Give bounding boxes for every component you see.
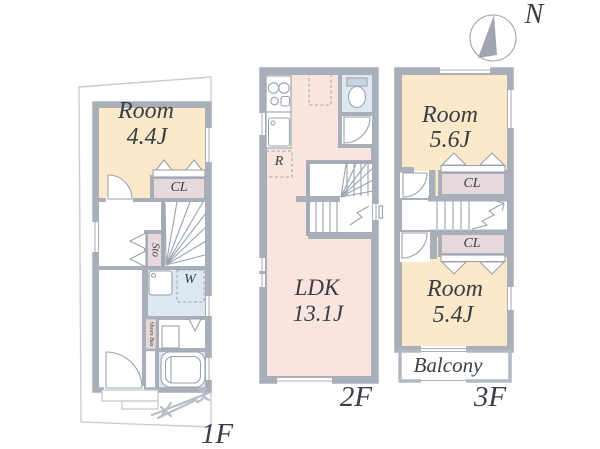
- toilet-icon-2f: [347, 78, 367, 108]
- floorplan-2f: [259, 70, 383, 384]
- compass-icon: [470, 15, 516, 61]
- closet-1f-label: CL: [170, 181, 187, 195]
- closet-3f-north-label: CL: [463, 177, 480, 191]
- room-3f-south-area: 5.4J: [433, 303, 474, 327]
- washer-label: W: [184, 273, 196, 287]
- floorplan-drawing: [0, 0, 600, 449]
- ldk-area: 13.1J: [293, 302, 343, 325]
- floorplan-image: N Room 4.4J CL Sto W Shoes Box 1F R LDK …: [0, 0, 600, 449]
- room-1f-name: Room: [118, 99, 174, 123]
- floor-label-1f: 1F: [201, 420, 233, 449]
- room-1f-area: 4.4J: [127, 125, 168, 149]
- refrigerator-label: R: [275, 155, 284, 169]
- storage-label: Sto: [149, 243, 160, 257]
- floor-label-3f: 3F: [474, 383, 506, 412]
- floor-label-2f: 2F: [340, 383, 372, 412]
- stove-icon: [266, 76, 291, 112]
- balcony-label: Balcony: [414, 355, 483, 376]
- shoes-box-label: Shoes Box: [148, 322, 154, 347]
- toilet-icon-1f: [162, 326, 179, 348]
- compass-needle: [478, 15, 497, 58]
- kitchen-counter: [266, 76, 291, 148]
- ldk-name: LDK: [295, 276, 340, 299]
- compass-north-label: N: [525, 1, 544, 29]
- room-3f-north-area: 5.6J: [430, 128, 471, 152]
- closet-3f-south-label: CL: [463, 237, 480, 251]
- room-3f-south-name: Room: [427, 277, 483, 301]
- bathtub-icon: [161, 352, 205, 387]
- washbasin-icon: [149, 271, 172, 295]
- room-3f-north-name: Room: [422, 103, 478, 127]
- stairs-3f-area: [400, 198, 509, 232]
